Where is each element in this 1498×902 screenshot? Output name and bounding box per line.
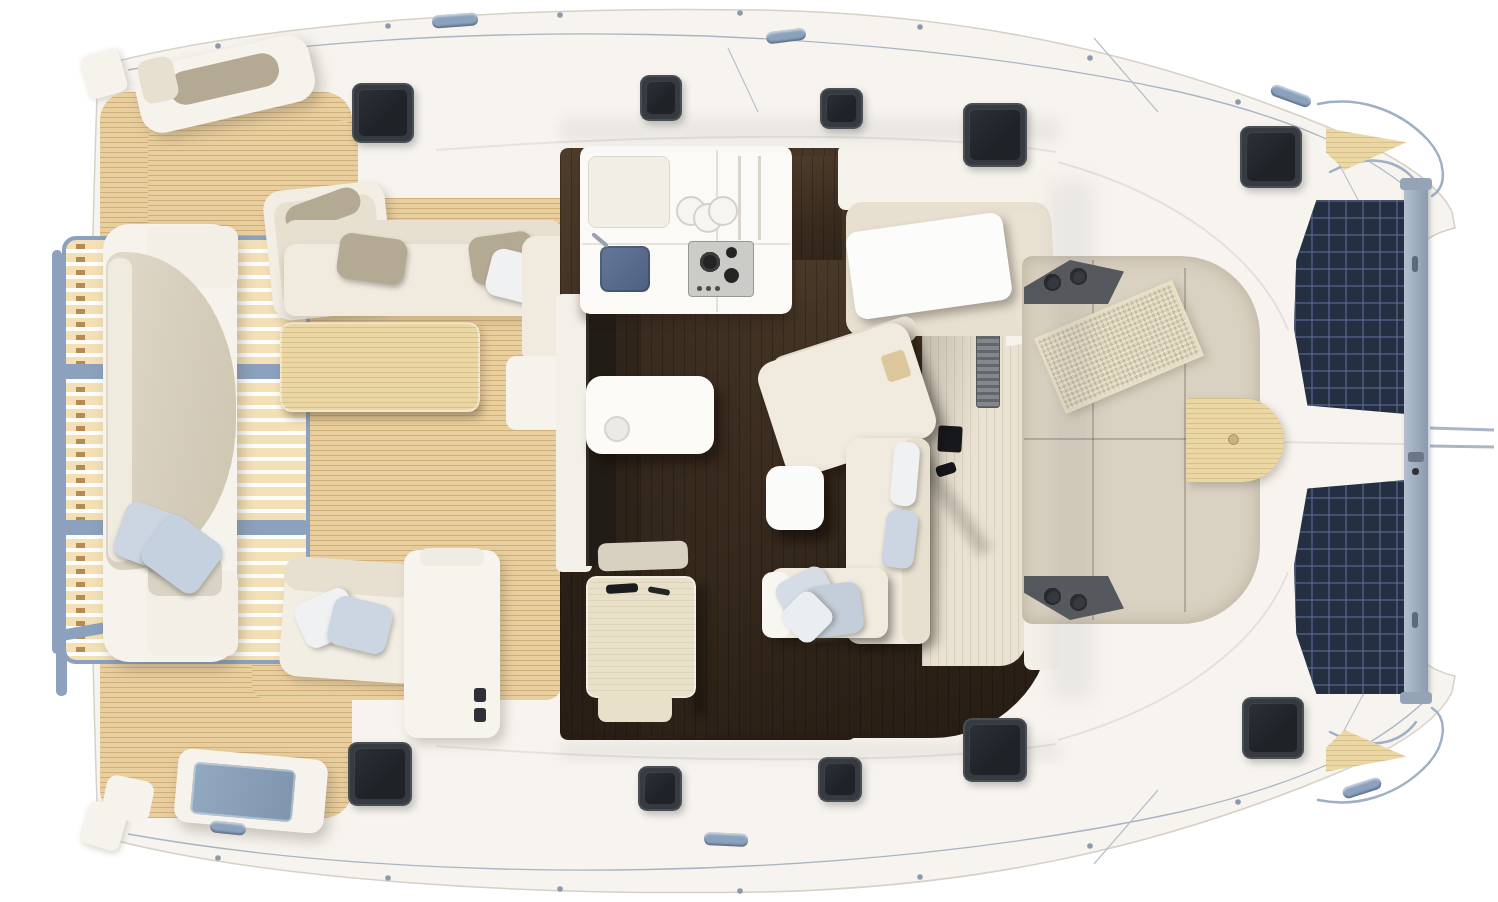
anchor-fitting xyxy=(1408,452,1424,462)
module-vent-slot xyxy=(474,688,486,702)
shelf-slot xyxy=(738,156,741,240)
nav-desk-extension xyxy=(598,692,672,722)
mooring-cleat xyxy=(704,832,749,847)
wet-bar-step xyxy=(420,548,484,566)
grill-glass-lid xyxy=(190,762,296,823)
catamaran-deck-plan xyxy=(0,0,1498,902)
hob-knob xyxy=(706,286,711,291)
burner-small xyxy=(726,247,737,258)
coffee-table xyxy=(766,466,824,530)
module-vent-slot xyxy=(474,708,486,722)
counter-divider xyxy=(582,243,790,245)
table-fitting xyxy=(1228,434,1239,445)
galley-sink xyxy=(600,246,650,292)
galley-island xyxy=(586,376,714,454)
deck-hatch xyxy=(818,757,862,802)
roof-edge-shade xyxy=(1052,180,1092,700)
nav-desk xyxy=(586,576,696,698)
sink-glass xyxy=(708,196,738,226)
burner-medium xyxy=(724,268,739,283)
bench-bolster-pillow xyxy=(335,231,409,286)
beam-slot xyxy=(1412,256,1418,272)
bowsprit-lines xyxy=(1430,428,1494,447)
galley-fridge-top xyxy=(588,156,670,228)
deck-hatch xyxy=(1242,697,1304,759)
platform-plank-marks xyxy=(76,244,85,658)
hob-knob xyxy=(715,286,720,291)
deck-hatch xyxy=(348,742,412,806)
cockpit-table xyxy=(280,322,480,412)
deck-hatch xyxy=(963,103,1027,167)
deck-hatch xyxy=(820,88,863,129)
platform-rail xyxy=(52,250,62,654)
deck-hatch xyxy=(638,766,682,811)
shelf-slot xyxy=(758,156,761,240)
deck-hatch xyxy=(352,83,414,143)
beam-slot xyxy=(1412,612,1418,628)
platform-ladder-rail xyxy=(56,650,67,696)
nav-seat-back xyxy=(598,540,689,571)
deck-hatch xyxy=(640,75,682,121)
hob-knob xyxy=(697,286,702,291)
deck-hatch xyxy=(1240,126,1302,188)
anchor-roller-dot xyxy=(1412,468,1419,475)
beam-end-cap xyxy=(1400,178,1432,190)
sofa-bolster-pillow xyxy=(889,441,920,507)
door-side-speaker xyxy=(937,425,962,452)
trampoline-port xyxy=(1294,480,1406,694)
mast-foot-vent xyxy=(976,328,1000,408)
trampoline-starboard xyxy=(1294,200,1406,414)
island-sink xyxy=(604,416,630,442)
burner-large xyxy=(700,252,720,272)
deck-hatch xyxy=(963,718,1027,782)
beam-end-cap xyxy=(1400,692,1432,704)
